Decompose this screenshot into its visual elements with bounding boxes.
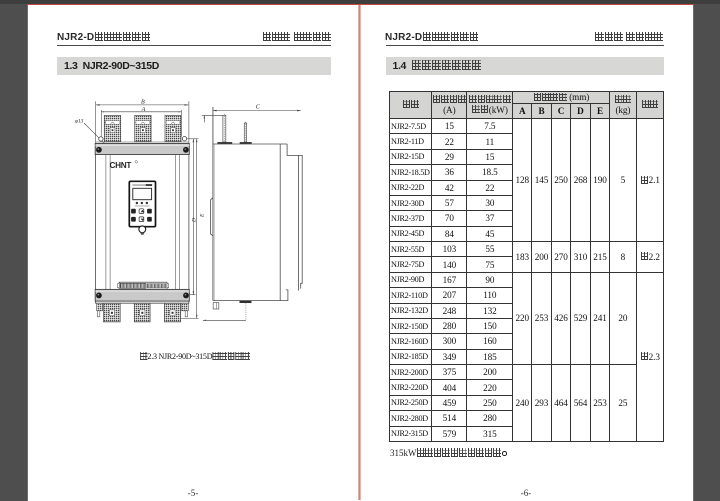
svg-text:E: E: [199, 213, 205, 218]
svg-text:B: B: [141, 100, 145, 106]
svg-text:CHNT: CHNT: [110, 161, 132, 170]
svg-text:A: A: [141, 107, 146, 113]
svg-text:C: C: [256, 104, 261, 110]
svg-text:D: D: [192, 218, 198, 223]
svg-text:φ13: φ13: [75, 119, 84, 125]
